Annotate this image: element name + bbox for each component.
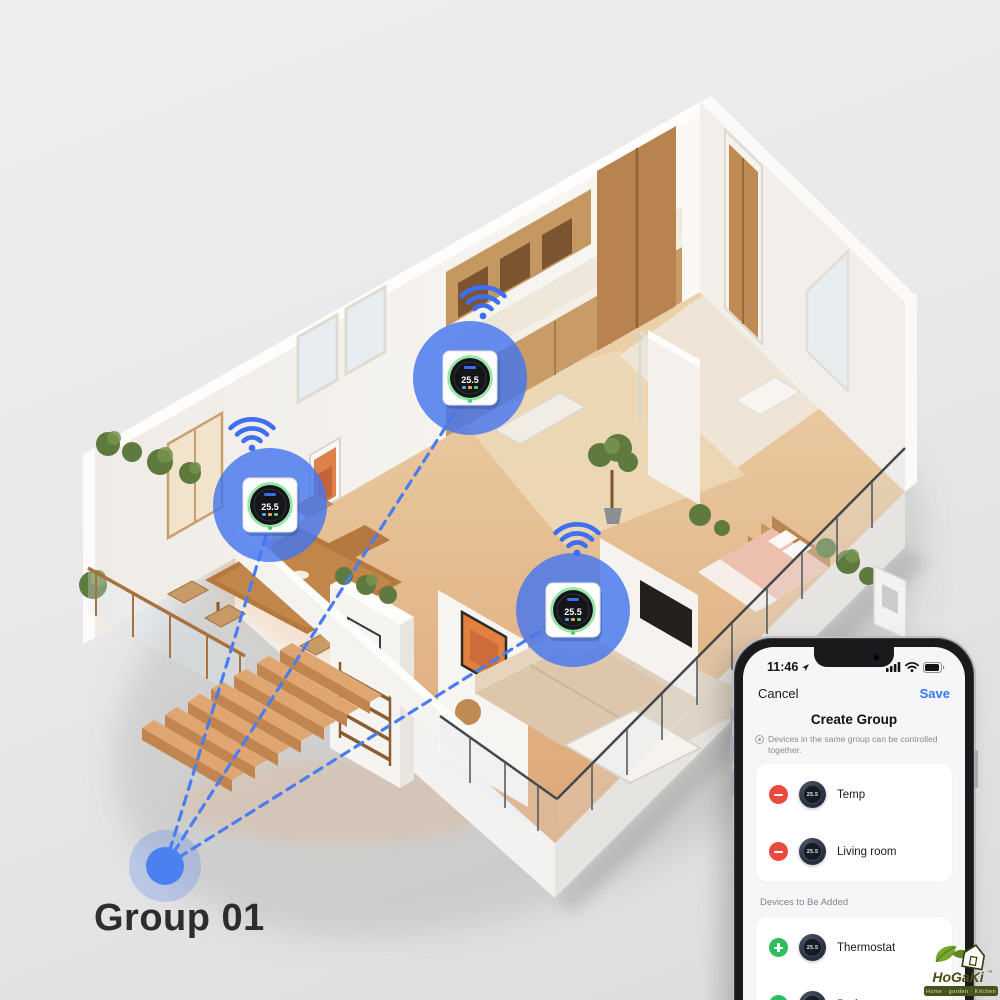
- hogaki-logo: HoGaKi ™ Home · garden · Kitchen: [922, 940, 1000, 1000]
- group-devices-card: 25.5 Temp 25.5 Living room: [756, 764, 952, 882]
- thermostat-device-icon: 25.5: [799, 781, 826, 808]
- volume-up-button: [730, 736, 734, 762]
- location-arrow-icon: [801, 663, 810, 672]
- add-device-button[interactable]: [769, 995, 788, 1000]
- house-icon: [962, 943, 986, 969]
- device-row: 25.5 Living room: [756, 823, 952, 880]
- volume-down-button: [730, 770, 734, 796]
- notch: [814, 647, 894, 667]
- save-button[interactable]: Save: [920, 686, 950, 701]
- thermostat-device-icon: 25.5: [799, 934, 826, 961]
- wifi-icon: [905, 662, 919, 672]
- page-title: Create Group: [743, 712, 965, 727]
- device-row: 25.5 Temp: [756, 766, 952, 823]
- add-device-button[interactable]: [769, 938, 788, 957]
- device-name: Thermostat: [837, 942, 895, 954]
- thermostat-display: 25.5: [261, 502, 279, 512]
- cancel-button[interactable]: Cancel: [758, 686, 798, 701]
- group-node: [129, 830, 201, 902]
- remove-device-button[interactable]: [769, 785, 788, 804]
- remove-device-button[interactable]: [769, 842, 788, 861]
- section-label: Devices to Be Added: [760, 897, 948, 908]
- info-icon: [755, 735, 764, 744]
- thermostat-display: 25.5: [564, 607, 582, 617]
- status-time: 11:46: [767, 660, 798, 674]
- subtitle-row: Devices in the same group can be control…: [755, 734, 953, 755]
- subtitle-text: Devices in the same group can be control…: [768, 734, 953, 755]
- nav-row: Cancel Save: [743, 674, 965, 701]
- device-name: Living room: [837, 846, 896, 858]
- thermostat-device-icon: 25.5: [799, 838, 826, 865]
- trademark-mark: ™: [988, 970, 993, 976]
- brand-name: HoGaKi: [932, 969, 984, 985]
- device-name: Temp: [837, 789, 865, 801]
- thermostat-device-icon: 25.5: [799, 991, 826, 1000]
- thermostat-display: 25.5: [461, 375, 479, 385]
- plant-pot: [604, 508, 622, 524]
- group-label: Group 01: [94, 897, 265, 940]
- brand-tagline: Home · garden · Kitchen: [926, 989, 996, 995]
- power-button: [974, 750, 978, 788]
- mute-switch: [730, 708, 734, 722]
- camera-dot: [873, 654, 880, 661]
- battery-icon: [923, 662, 945, 673]
- marketing-scene: 25.5 25.5: [0, 0, 1000, 1000]
